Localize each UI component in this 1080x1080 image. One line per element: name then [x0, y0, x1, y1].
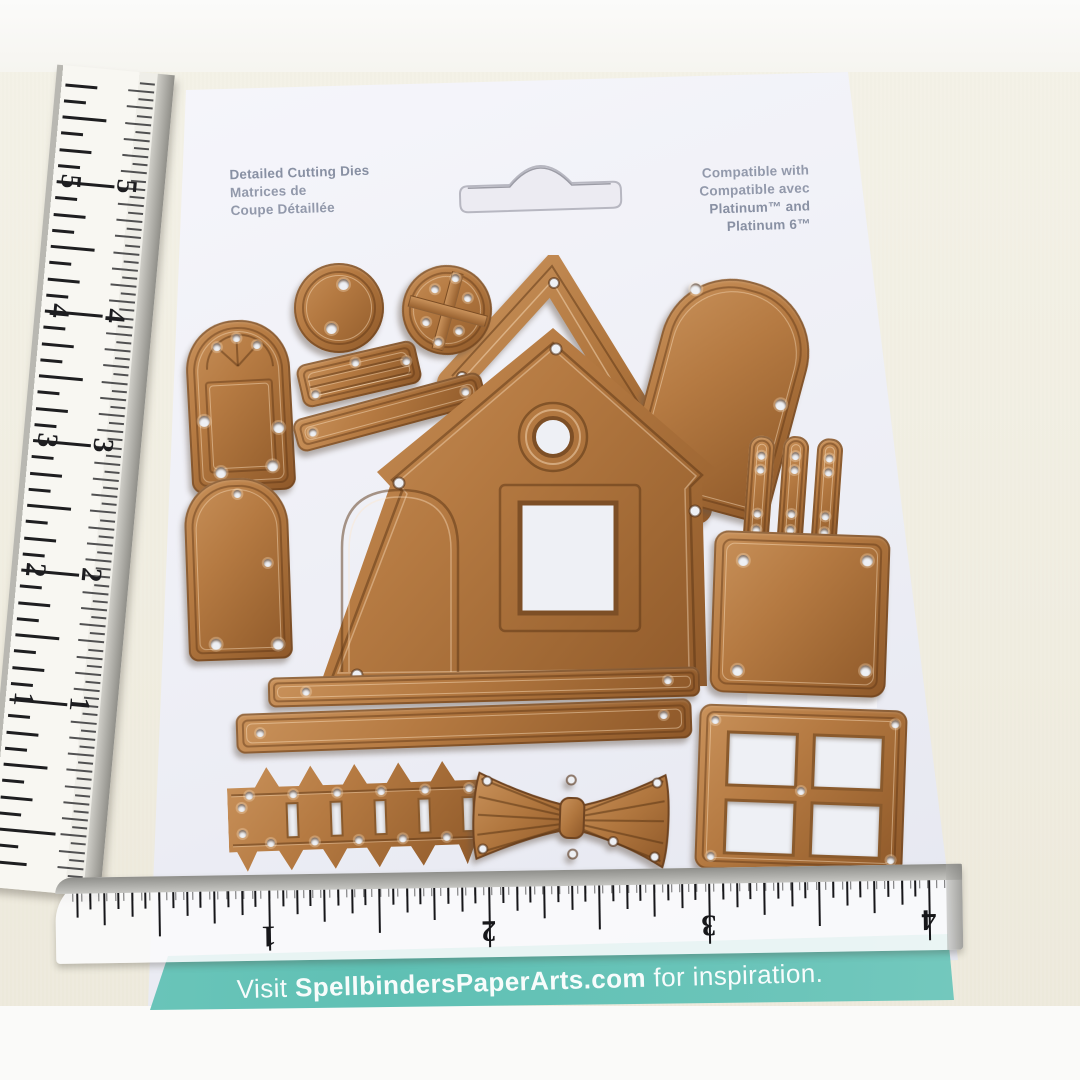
banner-suffix: for inspiration.: [645, 958, 823, 993]
photo-stage: Detailed Cutting Dies Matrices de Coupe …: [0, 0, 1080, 1080]
four-pane-window-die: [694, 703, 908, 875]
left-ruler[interactable]: 5 5 4 4 3 3 2 2 1 1: [0, 65, 175, 897]
left-ruler-number: 3: [28, 422, 65, 459]
left-ruler-number: 2: [72, 556, 109, 593]
cathedral-window-door-die: [184, 317, 297, 494]
hang-slot: [447, 159, 634, 229]
bottom-ruler-number: 3: [692, 907, 727, 942]
bow-die: [466, 752, 676, 881]
bottom-ruler-number: 1: [252, 918, 287, 953]
bottom-ruler-number: 4: [911, 902, 946, 937]
banner-prefix: Visit: [236, 973, 295, 1005]
wall-strip: [0, 0, 1080, 72]
left-ruler-number: 1: [4, 681, 41, 718]
left-ruler-ticks: [0, 65, 175, 897]
left-ruler-number: 4: [95, 297, 132, 334]
table-strip: [0, 1006, 1080, 1080]
door-die: [183, 476, 293, 662]
bottom-ruler-number: 2: [472, 913, 507, 948]
left-ruler-number: 3: [83, 427, 120, 464]
package-right-text: Compatible with Compatible avec Platinum…: [639, 161, 811, 238]
square-panel-die: [709, 530, 891, 698]
house-front-detail: [315, 325, 720, 695]
bottom-ruler[interactable]: 1 2 3 4: [55, 864, 963, 964]
package-left-text: Detailed Cutting Dies Matrices de Coupe …: [229, 162, 371, 220]
left-ruler-number: 5: [51, 163, 88, 200]
left-ruler-number: 2: [16, 551, 53, 588]
left-ruler-number: 1: [60, 686, 97, 723]
left-ruler-number: 4: [39, 292, 76, 329]
left-ruler-number: 5: [107, 168, 144, 205]
bottom-ruler-ticks: [55, 864, 963, 964]
